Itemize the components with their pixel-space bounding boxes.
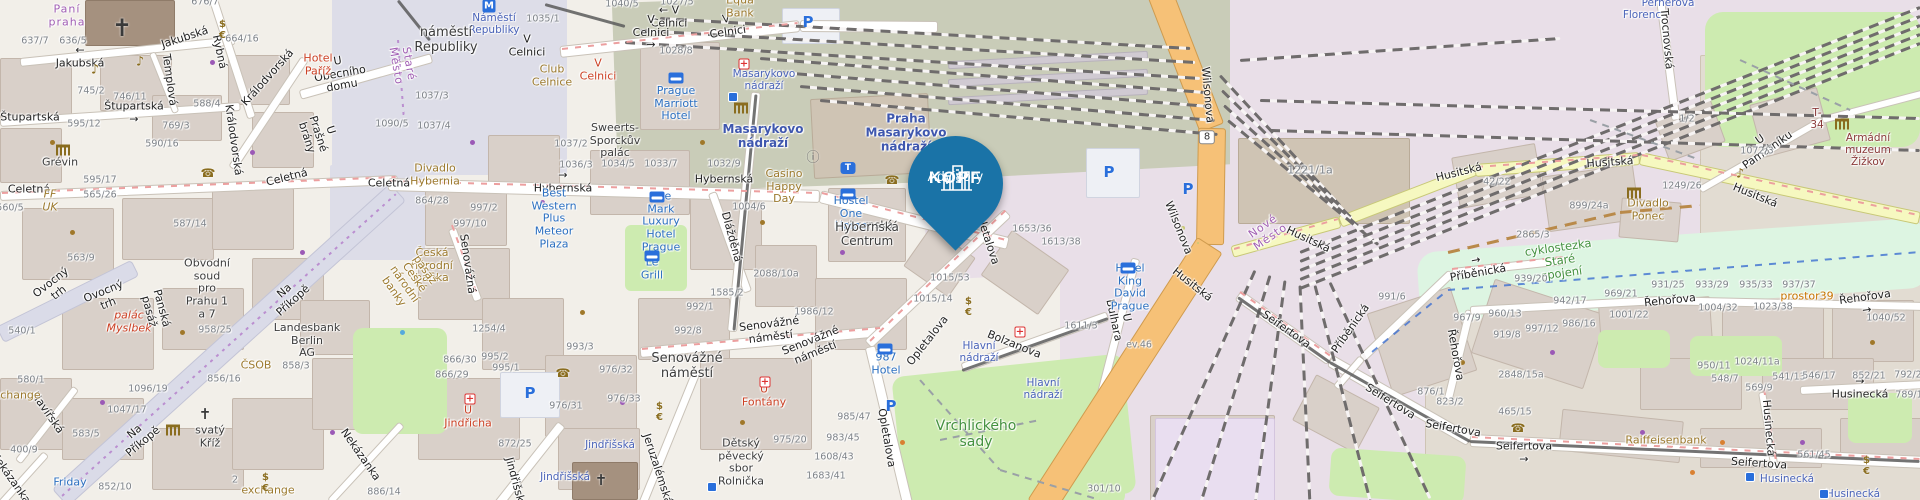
street-label: Štupartská	[0, 112, 59, 125]
house-number: 997/10	[453, 220, 486, 231]
currency-exchange-icon: $€	[656, 401, 662, 423]
map-area	[1328, 447, 1466, 500]
house-number: 939/20	[1514, 275, 1547, 286]
poi-dot	[840, 250, 845, 255]
pharmacy-icon: +	[739, 59, 750, 70]
house-number: 976/31	[549, 402, 582, 413]
house-number: 1001/22	[1609, 311, 1648, 322]
house-number: 769/3	[162, 122, 189, 133]
house-number: 852/10	[98, 483, 131, 494]
house-number: 595/12	[67, 120, 100, 131]
museum-icon	[1627, 188, 1641, 199]
place-label: Hybernská Centrum	[835, 221, 899, 249]
place-label: svatý Kříž	[195, 424, 225, 449]
house-number: 960/13	[1488, 310, 1521, 321]
place-label: Senovážné náměstí	[651, 352, 722, 382]
parking-icon: P	[801, 14, 815, 30]
house-number: 866/30	[443, 356, 476, 367]
house-number: 1090/5	[375, 120, 408, 131]
poi-dot	[1800, 440, 1805, 445]
poi-dot	[1870, 340, 1875, 345]
district-label: Paní praha	[49, 3, 86, 28]
house-number: 2	[232, 476, 238, 487]
house-number: 864/28	[415, 197, 448, 208]
map-area	[212, 188, 294, 250]
house-number: 1683/41	[806, 472, 845, 483]
house-number: 1027/5	[660, 0, 693, 8]
poi-label-red: Hotel Paříž	[303, 52, 332, 77]
museum-icon	[166, 425, 180, 436]
house-number: 1/2	[1679, 115, 1694, 126]
house-number: 976/32	[599, 366, 632, 377]
hotel-bed-icon	[878, 344, 893, 355]
poi-dot	[50, 140, 55, 145]
house-number: 301/10	[1087, 485, 1120, 496]
church-icon: ✝	[112, 14, 132, 42]
house-number: 590/16	[145, 140, 178, 151]
poi-label-red: palác Myslbek	[107, 309, 152, 334]
hotel-bed-icon	[669, 73, 684, 84]
house-number: 995/1	[492, 364, 519, 375]
route-shield: 8	[1199, 130, 1215, 144]
house-number: 992/8	[674, 327, 701, 338]
house-number: 950/11	[1697, 362, 1730, 373]
house-number: 583/5	[72, 430, 99, 441]
house-number: 992/1	[686, 303, 713, 314]
house-number: 1015/53	[930, 274, 969, 285]
poi-dot	[250, 150, 255, 155]
poi-dot	[400, 330, 405, 335]
poi-label: FF UK	[42, 188, 57, 213]
currency-exchange-icon: $€	[219, 19, 225, 41]
house-number: 1004/6	[732, 203, 765, 214]
house-number: 933/29	[1695, 281, 1728, 292]
poi-label: Club Celnice	[532, 63, 572, 88]
poi-label-red: V Celnici	[580, 57, 617, 82]
parking-icon: P	[523, 385, 537, 401]
map-area	[1598, 330, 1670, 368]
parking-icon: P	[1102, 164, 1116, 180]
currency-exchange-icon: $€	[965, 296, 971, 318]
park-label: Vrchlického sady	[936, 418, 1017, 450]
transit-stop-label: Hlavní nádraží	[960, 340, 999, 364]
poi-label: Casino Happy Day	[766, 168, 803, 206]
tram-stop-icon	[707, 482, 717, 492]
hotel-label: Prague Marriott Hotel	[654, 85, 698, 123]
house-number: 546/17	[1802, 372, 1835, 383]
house-number: 465/15	[1498, 408, 1531, 419]
house-number: 637/7	[21, 37, 48, 48]
poi-dot	[1550, 350, 1555, 355]
hotel-bed-icon	[645, 251, 660, 262]
street-label: Opletalova	[905, 314, 952, 369]
map-area	[353, 328, 447, 434]
house-number: 852/21	[1852, 372, 1885, 383]
hotel-bed-icon	[1121, 263, 1136, 274]
pharmacy-icon: +	[465, 394, 476, 405]
house-number: 42/22	[1483, 178, 1510, 189]
house-number: 993/3	[566, 343, 593, 354]
house-number: 1249/26	[1662, 182, 1701, 193]
street-label: Hybernská	[695, 174, 753, 187]
museum-label: Armádní muzeum Žižkov	[1845, 132, 1891, 168]
house-number: 976/33	[607, 395, 640, 406]
poi-dot	[1690, 470, 1695, 475]
house-number: 1037/4	[417, 122, 450, 133]
house-number: 1033/7	[644, 160, 677, 171]
metro-icon: M	[483, 0, 496, 13]
place-label: náměstí Republiky	[414, 26, 477, 56]
house-number: 1072/3	[1740, 147, 1773, 158]
house-number: 823/2	[1436, 398, 1463, 409]
information-icon: ⓘ	[806, 147, 819, 166]
pin-content: KOPF Advisory	[908, 130, 1003, 225]
house-number: 969/21	[1604, 290, 1637, 301]
house-number: 540/1	[8, 327, 35, 338]
house-number: 1613/38	[1041, 238, 1080, 249]
street-label: V Celnici	[509, 33, 546, 58]
house-number: 1585/2	[710, 289, 743, 300]
hotel-label: 987 Hotel	[871, 351, 900, 376]
kopf-advisory-map-pin[interactable]: KOPF Advisory	[908, 136, 1003, 231]
poi-label-red: U Jindřicha	[444, 404, 492, 429]
telephone-icon: ☎	[201, 166, 216, 180]
house-number: 985/47	[837, 413, 870, 424]
poi-dot	[300, 250, 305, 255]
house-number: 789/1	[1895, 391, 1920, 402]
house-number: 563/9	[67, 254, 94, 265]
transit-stop-label: Hlavní nádraží	[1024, 377, 1063, 401]
transit-stop-label: Jindřišská	[585, 439, 635, 451]
transit-stop-label: Husinecká	[1826, 488, 1880, 500]
house-number: 866/29	[435, 371, 468, 382]
house-number: 2088/10a	[753, 270, 798, 281]
currency-exchange-icon: $€	[1863, 455, 1869, 477]
poi-dot	[760, 220, 765, 225]
house-number: 1040/5	[605, 0, 638, 10]
house-number: 1023/38	[1753, 303, 1792, 314]
house-number: 991/6	[1378, 293, 1405, 304]
poi-dot	[470, 140, 475, 145]
map-area	[232, 398, 324, 470]
transit-stop-label: Pernerova	[1642, 0, 1695, 9]
house-number: 569/9	[1745, 384, 1772, 395]
pharmacy-icon: +	[760, 377, 771, 388]
house-number: 919/8	[1493, 331, 1520, 342]
poi-dot	[700, 140, 705, 145]
house-number: 2848/15a	[1498, 371, 1543, 382]
parking-icon: P	[1181, 181, 1195, 197]
house-number: 664/16	[225, 35, 258, 46]
house-number: 958/25	[198, 326, 231, 337]
street-label: Seifertova →	[1496, 440, 1552, 465]
telephone-icon: ☎	[556, 366, 571, 380]
poi-dot	[180, 330, 185, 335]
museum-icon	[734, 103, 748, 114]
house-number: 858/3	[282, 362, 309, 373]
tram-stop-icon	[1745, 472, 1755, 482]
house-number: 1037/3	[415, 92, 448, 103]
house-number: 856/16	[207, 375, 240, 386]
poi-dot	[580, 310, 585, 315]
house-number: ev.46	[1126, 341, 1152, 352]
house-number: 1024/11a	[1734, 358, 1779, 369]
museum-icon	[1835, 119, 1849, 130]
house-number: 587/14	[173, 220, 206, 231]
house-number: 588/4	[193, 100, 220, 111]
map-canvas[interactable]: ← JakubskáJakubskáRybnáKrálodvorskáKrálo…	[0, 0, 1920, 500]
place-label: Dětský pěvecký sbor Rolnička	[718, 438, 764, 489]
transit-stop-label: Florenc	[1623, 9, 1661, 21]
music-venue-icon: ♪	[136, 55, 144, 70]
music-venue-icon: ♪	[1736, 167, 1744, 182]
house-number: 983/45	[826, 434, 859, 445]
house-number: 745/2	[77, 87, 104, 98]
street-label: Celetná	[368, 178, 410, 191]
transit-stop-label: Husinecká	[1760, 473, 1814, 485]
house-number: 595/17	[83, 176, 116, 187]
place-label: Landesbank Berlin AG	[274, 322, 340, 360]
music-venue-icon: ♪	[91, 63, 99, 78]
house-number: 1040/52	[1866, 314, 1905, 325]
transit-stop-label: Masarykovo nádraží	[733, 68, 796, 92]
house-number: 1254/4	[472, 325, 505, 336]
hotel-label: Friday	[53, 477, 86, 490]
street-label: Králodvorská	[222, 104, 244, 177]
house-number: 1221/1a	[1287, 165, 1332, 178]
transit-stop-label: Jindřišská	[540, 471, 590, 483]
place-label: Obvodní soud pro Prahu 1 a 7	[184, 257, 230, 320]
poi-dot	[900, 440, 905, 445]
house-number: 937/37	[1782, 281, 1815, 292]
house-number: 935/33	[1739, 281, 1772, 292]
house-number: 975/20	[773, 436, 806, 447]
poi-dot	[330, 430, 335, 435]
hotel-bed-icon	[650, 192, 665, 203]
house-number: 1032/9	[707, 160, 740, 171]
pharmacy-icon: +	[1015, 327, 1026, 338]
tram-stop-icon	[1819, 489, 1829, 499]
house-number: 1047/17	[107, 406, 146, 417]
museum-label: T-34	[1810, 107, 1823, 131]
telephone-icon: ☎	[1511, 421, 1526, 435]
hotel-bed-icon	[841, 189, 856, 200]
taxi-icon: T	[841, 162, 856, 174]
house-number: 580/1	[17, 376, 44, 387]
poi-dot	[70, 230, 75, 235]
house-number: 1037/2	[554, 140, 587, 151]
poi-label: Equa Bank	[726, 0, 754, 20]
house-number: 2865/3	[1516, 231, 1549, 242]
house-number: 548/7	[1711, 375, 1738, 386]
church-icon: ✝	[199, 405, 212, 423]
house-number: 1096/19	[128, 385, 167, 396]
house-number: 792/2	[1894, 371, 1920, 382]
poi-dot	[740, 420, 745, 425]
poi-label: Divadlo Ponec	[1627, 197, 1669, 222]
place-label: Sweerts- Sporckův palác	[590, 122, 641, 160]
currency-exchange-icon: $€	[262, 472, 268, 494]
house-number: 1653/36	[1012, 225, 1051, 236]
house-number: 1986/12	[794, 308, 833, 319]
tram-stop-icon	[728, 92, 738, 102]
house-number: 676/7	[191, 0, 218, 8]
house-number: 561/45	[1797, 451, 1830, 462]
poi-dot	[1720, 440, 1725, 445]
museum-icon	[56, 145, 70, 156]
poi-label: Raiffeisenbank	[1625, 435, 1706, 448]
map-area	[22, 208, 114, 280]
house-number: 560/5	[0, 204, 24, 215]
house-number: 541/13	[1772, 373, 1805, 384]
station-label: Masarykovo nádraží	[723, 123, 804, 151]
house-number: 400/9	[10, 446, 37, 457]
house-number: 931/25	[1651, 281, 1684, 292]
hotel-label: Best Western Plus Meteor Plaza	[531, 187, 576, 250]
church-icon: ✝	[595, 471, 608, 489]
house-number: 636/5	[59, 37, 86, 48]
house-number: 997/2	[470, 204, 497, 215]
house-number: 997/12	[1525, 325, 1558, 336]
poi-label: ČSOB	[241, 360, 272, 373]
place-label: Grévin	[42, 157, 78, 170]
poi-label: exchange	[0, 390, 41, 403]
parking-icon: P	[884, 398, 898, 414]
map-line	[1196, 128, 1226, 245]
house-number: 746/11	[113, 93, 146, 104]
pin-subtitle: Advisory	[928, 169, 984, 185]
house-number: 986/16	[1562, 320, 1595, 331]
house-number: 1034/5	[601, 160, 634, 171]
house-number: 1608/43	[814, 453, 853, 464]
house-number: 565/26	[83, 191, 116, 202]
house-number: 1611/3	[1064, 322, 1097, 333]
street-label: Štupartská →	[104, 100, 163, 125]
house-number: 967/9	[1453, 314, 1480, 325]
house-number: 1015/14	[913, 295, 952, 306]
house-number: 1036/3	[559, 161, 592, 172]
house-number: 1035/1	[526, 15, 559, 26]
house-number: 899/24a	[1569, 202, 1608, 213]
house-number: 1028/8	[659, 47, 692, 58]
map-area	[1197, 242, 1199, 244]
house-number: 872/25	[498, 440, 531, 451]
telephone-icon: ☎	[885, 173, 900, 187]
house-number: 1004/32	[1698, 304, 1737, 315]
poi-dot	[100, 400, 105, 405]
district-label: Staré Město	[386, 44, 418, 86]
house-number: 942/17	[1553, 297, 1586, 308]
poi-label: Divadlo Hybernia	[410, 162, 460, 187]
house-number: 886/14	[367, 488, 400, 499]
